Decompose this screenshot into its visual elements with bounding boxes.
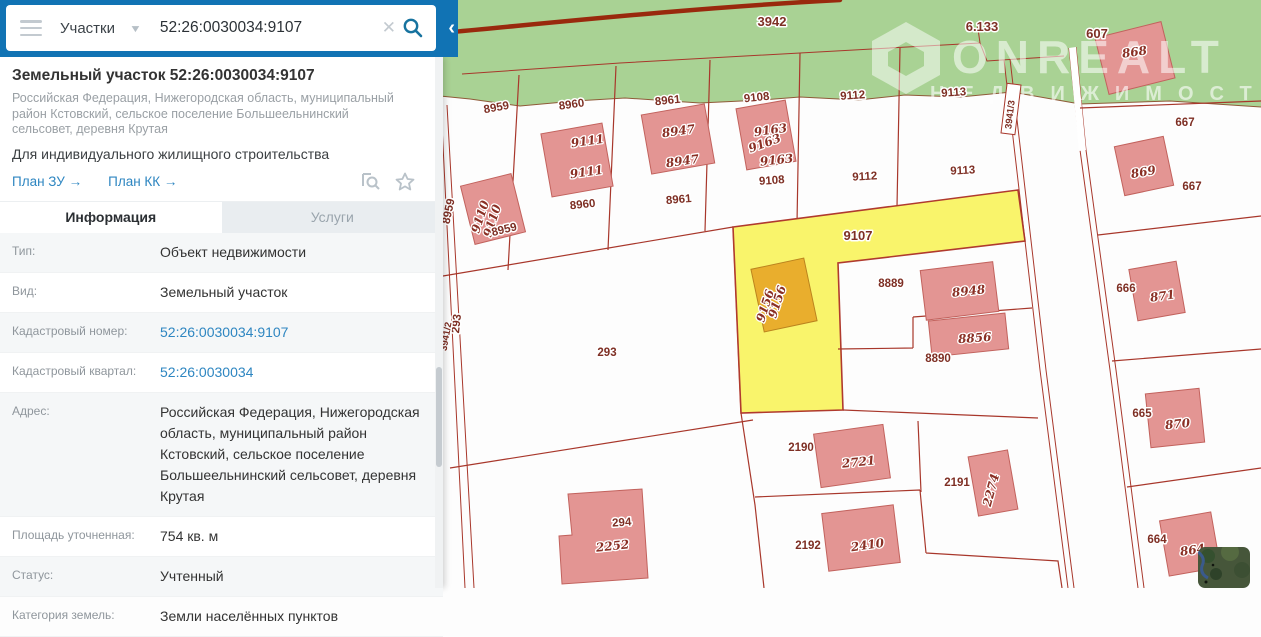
parcel-address-subtitle: Российская Федерация, Нижегородская обла… <box>12 91 412 138</box>
satellite-layer-thumbnail[interactable] <box>1198 543 1250 588</box>
row-type: Тип: Объект недвижимости <box>0 233 443 273</box>
search-input[interactable] <box>158 18 352 38</box>
map-label: 9112 <box>852 170 878 183</box>
map-label: 3942 <box>758 14 787 29</box>
map-label: 870 <box>1164 416 1191 433</box>
tab-information[interactable]: Информация <box>0 202 222 233</box>
map-label: 8961 <box>665 193 692 207</box>
map-label: 664 <box>1147 534 1167 546</box>
parcel-attributes: Тип: Объект недвижимости Вид: Земельный … <box>0 233 443 637</box>
menu-icon[interactable] <box>20 20 42 36</box>
map-label: 9113 <box>941 86 967 100</box>
panel-tabs: Информация Услуги <box>0 201 443 233</box>
cadastral-number-link[interactable]: 52:26:0030034:9107 <box>160 322 420 343</box>
chevron-down-icon[interactable]: ▼ <box>129 22 142 34</box>
building-2252[interactable] <box>559 489 648 584</box>
map-label: 9113 <box>950 164 976 177</box>
map-label: 2192 <box>795 540 821 552</box>
row-cadastral-number: Кадастровый номер: 52:26:0030034:9107 <box>0 313 443 353</box>
map-label: 9108 <box>759 174 786 188</box>
map-label: 2191 <box>944 477 970 489</box>
plan-zu-link[interactable]: План ЗУ → <box>12 174 82 189</box>
map-label-selected: 9107 <box>844 228 873 243</box>
favorite-star-icon[interactable] <box>395 172 415 191</box>
tab-services[interactable]: Услуги <box>222 202 444 233</box>
scrollbar-thumb[interactable] <box>436 367 442 467</box>
parcel-info-panel: Земельный участок 52:26:0030034:9107 Рос… <box>0 57 443 588</box>
map-label: 8856 <box>958 330 993 346</box>
layer-select[interactable]: Участки <box>60 20 115 37</box>
map-label: 665 <box>1132 408 1152 420</box>
map-label: 8889 <box>878 278 904 290</box>
search-icon[interactable] <box>402 17 424 39</box>
collapse-panel-button[interactable]: ‹ <box>448 18 455 38</box>
parcel-purpose: Для индивидуального жилищного строительс… <box>12 146 429 162</box>
map-label: 8890 <box>925 353 951 365</box>
search-card: Участки ▼ ✕ <box>6 5 436 51</box>
watermark-line2: НЕДВИЖИМОСТЬ <box>930 83 1261 105</box>
parcel-title: Земельный участок 52:26:0030034:9107 <box>12 67 429 85</box>
search-toolbar: Участки ▼ ✕ ‹ <box>0 0 458 57</box>
map-label: 667 <box>1175 117 1194 129</box>
map-label: 607 <box>1086 26 1108 41</box>
row-cadastral-block: Кадастровый квартал: 52:26:0030034 <box>0 353 443 393</box>
map-label: 294 <box>612 516 633 529</box>
row-area: Площадь уточненная: 754 кв. м <box>0 517 443 557</box>
map-label: 667 <box>1182 181 1201 193</box>
map-label: 6.133 <box>966 19 999 34</box>
row-status: Статус: Учтенный <box>0 557 443 597</box>
map-label: 666 <box>1116 283 1135 295</box>
map-label: 9112 <box>840 89 866 103</box>
clear-search-icon[interactable]: ✕ <box>376 18 402 38</box>
preview-icon[interactable] <box>361 172 381 190</box>
map-label: 2190 <box>788 442 814 454</box>
cadastral-block-link[interactable]: 52:26:0030034 <box>160 362 420 383</box>
panel-scrollbar[interactable] <box>435 57 443 588</box>
map-label: 293 <box>597 347 616 359</box>
row-address: Адрес: Российская Федерация, Нижегородск… <box>0 393 443 517</box>
plan-kk-link[interactable]: План КК → <box>108 174 177 189</box>
row-land-category: Категория земель: Земли населённых пункт… <box>0 597 443 637</box>
row-kind: Вид: Земельный участок <box>0 273 443 313</box>
